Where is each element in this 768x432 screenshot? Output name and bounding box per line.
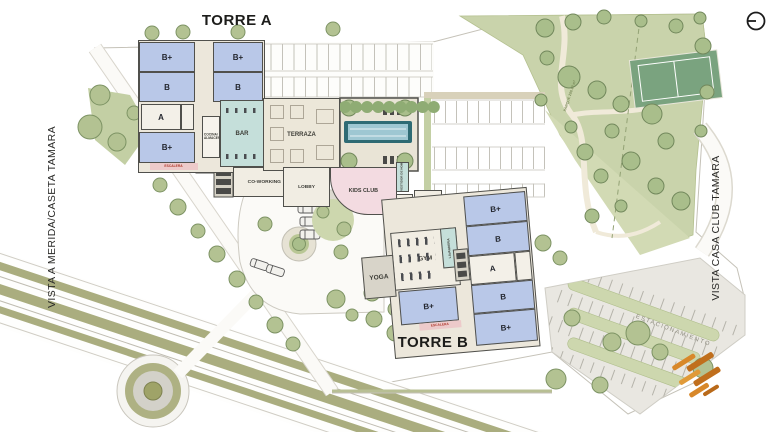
pergola: [270, 127, 284, 141]
bar-counter: [226, 154, 258, 159]
terraza: TERRAZA: [263, 98, 340, 171]
unit-room: B+: [139, 42, 195, 72]
pergola: [270, 105, 284, 119]
pergola: [290, 149, 304, 163]
escalera-strip: ESCALERA: [150, 163, 198, 170]
bath-cell: [514, 251, 532, 281]
north-arrow-icon: [748, 13, 765, 30]
pergola: [316, 145, 334, 160]
curved-road: [700, 128, 725, 252]
unit-room: B+: [473, 309, 538, 346]
unit-room: B: [139, 72, 195, 102]
unit-room: B+: [213, 42, 263, 72]
gym-equipment: [398, 236, 435, 247]
banos-hombres: BAÑO/VESTIDOR DE HOMBRES: [396, 162, 409, 192]
unit-room: B: [213, 72, 263, 102]
gym-equipment: [401, 271, 432, 282]
site-plan: B+ B A B+ B+ B ESCALERA BAR COCINA/ ALMA…: [0, 0, 768, 432]
unit-room: A: [468, 252, 516, 285]
tennis-court: [629, 50, 722, 108]
unit-room: B+: [139, 132, 195, 163]
torre-b-building: GYM LAVANDERIA YOGA B+ ESCALERA B+ B A B…: [353, 185, 545, 366]
bar-counter: [226, 108, 258, 113]
unit-room: B+: [398, 286, 459, 325]
bar-room: BAR: [220, 100, 264, 167]
pergola: [290, 105, 304, 119]
unit-room: A: [141, 104, 181, 130]
lobby: LOBBY: [283, 167, 330, 207]
pergola: [316, 109, 334, 124]
yoga: YOGA: [361, 255, 397, 300]
bath-cell: [181, 104, 194, 130]
pergola: [270, 149, 284, 163]
cocina-almacen-room: COCINA/ ALMACEN: [202, 116, 220, 158]
